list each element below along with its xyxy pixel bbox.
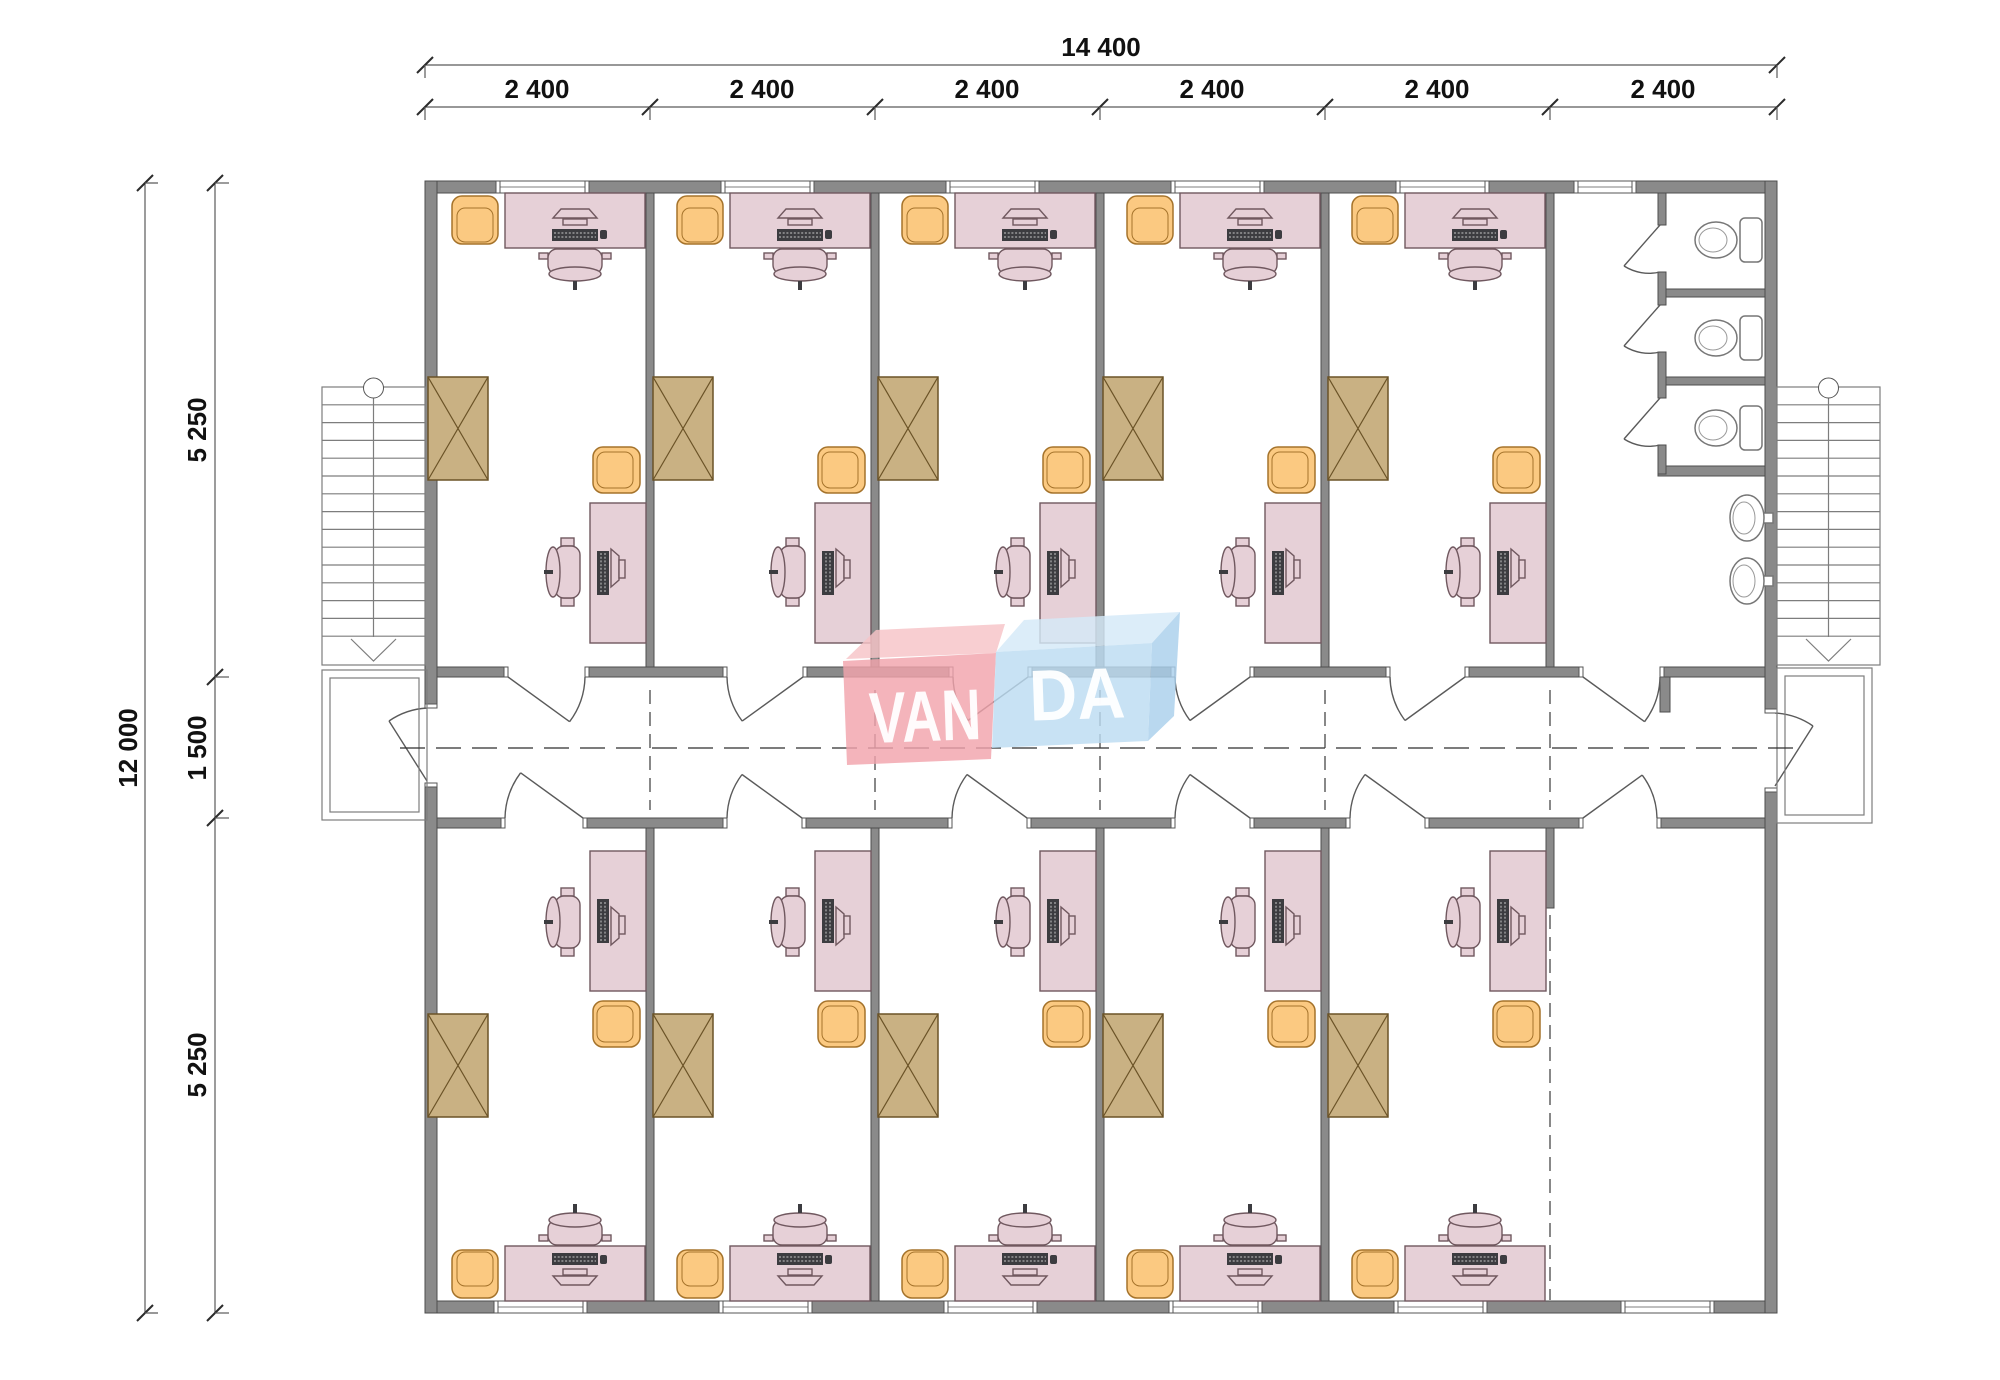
wall-segment xyxy=(1658,377,1765,385)
door-swing xyxy=(1175,677,1190,721)
staircase-left xyxy=(322,378,425,665)
door-jamb xyxy=(1250,667,1254,677)
wall-segment xyxy=(1425,818,1583,828)
door-leaf xyxy=(521,773,583,818)
office-room-furniture-top xyxy=(1103,193,1321,643)
door-leaf xyxy=(1775,726,1813,786)
window-jamb xyxy=(494,1301,498,1313)
toilet xyxy=(1695,406,1762,450)
vanda-logo: VAN DA xyxy=(843,612,1180,765)
entry-landing-left xyxy=(322,670,427,820)
wall-segment xyxy=(1765,788,1777,1313)
logo-text-van: VAN xyxy=(868,675,983,759)
wall-segment xyxy=(1658,352,1666,398)
stall-door-swing xyxy=(1624,266,1660,273)
office-room-furniture-top xyxy=(878,193,1096,643)
door-leaf xyxy=(1190,775,1250,819)
door-swing xyxy=(1775,713,1813,726)
window-jamb xyxy=(1485,181,1489,193)
window-jamb xyxy=(810,181,814,193)
door-leaf xyxy=(967,775,1027,819)
toilet-tank xyxy=(1740,406,1762,450)
door-leaf xyxy=(508,677,570,722)
floor-plan-sheet: 14 400 2 400 2 400 2 400 2 400 2 400 2 4… xyxy=(0,0,2000,1380)
window-jamb xyxy=(1171,181,1175,193)
wall-segment xyxy=(1658,466,1765,476)
door-leaf xyxy=(1583,775,1642,818)
office-room-furniture-top xyxy=(428,193,646,643)
entry-landing-right xyxy=(1777,668,1872,823)
door-jamb xyxy=(1465,667,1469,677)
office-room-furniture-bottom-row xyxy=(428,851,1546,1301)
wall-segment xyxy=(437,667,508,677)
entry-landing-right-inner xyxy=(1785,676,1864,815)
door-jamb xyxy=(1386,667,1390,677)
logo-text-da: DA xyxy=(1028,653,1127,736)
door-jamb xyxy=(802,818,806,828)
toilet xyxy=(1695,218,1762,262)
wall-segment xyxy=(1657,818,1765,828)
door-swing xyxy=(727,677,742,721)
wall-segment xyxy=(1658,193,1666,225)
door-swing xyxy=(1350,775,1365,819)
office-room-furniture-top xyxy=(1328,193,1546,643)
staircase-right xyxy=(1777,378,1880,665)
toilet-bowl xyxy=(1695,410,1737,446)
door-jamb xyxy=(1579,667,1583,677)
window-jamb xyxy=(721,181,725,193)
floor-plan-drawing: 14 400 2 400 2 400 2 400 2 400 2 400 2 4… xyxy=(0,0,2000,1380)
dim-label-bay-1: 2 400 xyxy=(504,74,569,104)
window-jamb xyxy=(719,1301,723,1313)
door-jamb xyxy=(723,818,727,828)
door-leaf xyxy=(1365,775,1425,819)
office-room-furniture-bottom xyxy=(1103,851,1321,1301)
window-jamb xyxy=(944,1301,948,1313)
wall-segment xyxy=(1250,818,1350,828)
dim-extension xyxy=(425,65,1777,78)
door-jamb xyxy=(803,667,807,677)
window-jamb xyxy=(1574,181,1578,193)
window-jamb xyxy=(496,181,500,193)
window-jamb xyxy=(583,1301,587,1313)
dim-label-corridor: 1 500 xyxy=(182,715,212,780)
door-swing xyxy=(389,708,427,721)
door-jamb xyxy=(723,667,727,677)
office-room-furniture-bottom xyxy=(653,851,871,1301)
office-room-furniture-bottom xyxy=(878,851,1096,1301)
wall-segment xyxy=(1465,667,1583,677)
dim-label-bay-3: 2 400 xyxy=(954,74,1019,104)
dim-label-total-width: 14 400 xyxy=(1061,32,1141,62)
dim-label-bay-5: 2 400 xyxy=(1404,74,1469,104)
entry-landing-left-inner xyxy=(330,678,419,812)
window-jamb xyxy=(1621,1301,1625,1313)
sink-basin xyxy=(1730,495,1764,541)
toilet-tank xyxy=(1740,218,1762,262)
stall-door-swing xyxy=(1624,439,1660,446)
window-jamb xyxy=(1258,1301,1262,1313)
door-swing xyxy=(1642,775,1657,818)
window-jamb xyxy=(1035,181,1039,193)
door-swing xyxy=(727,775,742,819)
office-room-furniture-bottom xyxy=(1328,851,1546,1301)
window-jamb xyxy=(1169,1301,1173,1313)
door-leaf xyxy=(742,677,803,721)
door-leaf xyxy=(1405,677,1465,721)
door-leaf xyxy=(389,721,427,781)
door-swing xyxy=(1175,775,1190,819)
door-jamb xyxy=(948,818,952,828)
door-swing xyxy=(1390,677,1405,721)
office-room-furniture-bottom xyxy=(428,851,646,1301)
door-leaf xyxy=(1583,677,1645,722)
door-jamb xyxy=(1657,818,1661,828)
door-jamb xyxy=(1765,788,1777,792)
window-jamb xyxy=(1396,181,1400,193)
door-jamb xyxy=(504,667,508,677)
wall-segment xyxy=(1658,445,1666,474)
toilet-bowl xyxy=(1695,222,1737,258)
door-jamb xyxy=(1660,667,1664,677)
wall-segment xyxy=(1660,677,1670,712)
dim-extension xyxy=(145,183,158,1313)
stall-door-swing xyxy=(1624,346,1660,353)
dim-label-bay-4: 2 400 xyxy=(1179,74,1244,104)
door-swing xyxy=(505,773,521,818)
wall-segment xyxy=(1660,667,1765,677)
door-swing xyxy=(952,775,967,819)
door-jamb xyxy=(1250,818,1254,828)
stall-door-leaf xyxy=(1624,305,1660,346)
wall-segment xyxy=(1658,289,1765,297)
door-jamb xyxy=(585,667,589,677)
office-room-furniture-top xyxy=(653,193,871,643)
window-jamb xyxy=(1033,1301,1037,1313)
door-jamb xyxy=(1027,818,1031,828)
sanitary-fixtures xyxy=(1695,218,1773,604)
wall-segment xyxy=(425,1301,1777,1313)
dim-label-bay-2: 2 400 xyxy=(729,74,794,104)
door-swing xyxy=(570,677,585,722)
sink-basin xyxy=(1730,558,1764,604)
door-jamb xyxy=(1171,818,1175,828)
toilet-bowl xyxy=(1695,320,1737,356)
dim-label-row-top: 5 250 xyxy=(182,397,212,462)
window-jamb xyxy=(1394,1301,1398,1313)
window-jamb xyxy=(1710,1301,1714,1313)
dim-label-bay-6: 2 400 xyxy=(1630,74,1695,104)
wall-segment xyxy=(1027,818,1175,828)
window-jamb xyxy=(946,181,950,193)
toilet-tank xyxy=(1740,316,1762,360)
window-jamb xyxy=(808,1301,812,1313)
stall-door-leaf xyxy=(1624,225,1660,266)
dim-label-row-bottom: 5 250 xyxy=(182,1032,212,1097)
walls xyxy=(425,181,1777,1313)
wall-segment xyxy=(1546,828,1554,908)
wall-segment xyxy=(583,818,727,828)
window-jamb xyxy=(1260,181,1264,193)
wall-segment xyxy=(437,818,505,828)
door-jamb xyxy=(1765,709,1777,713)
wall-segment xyxy=(1546,193,1554,667)
door-leaf xyxy=(742,775,802,819)
door-jamb xyxy=(583,818,587,828)
wall-segment xyxy=(1250,667,1390,677)
wall-segment xyxy=(585,667,727,677)
door-jamb xyxy=(501,818,505,828)
dim-label-total-height: 12 000 xyxy=(113,708,143,788)
window-jamb xyxy=(1483,1301,1487,1313)
wall-segment xyxy=(1765,181,1777,713)
wall-segment xyxy=(802,818,952,828)
door-jamb xyxy=(1346,818,1350,828)
window-jamb xyxy=(585,181,589,193)
stall-door-leaf xyxy=(1624,398,1660,439)
door-leaf xyxy=(1190,677,1250,721)
door-jamb xyxy=(1425,818,1429,828)
toilet xyxy=(1695,316,1762,360)
wall-segment xyxy=(1658,272,1666,305)
door-jamb xyxy=(1579,818,1583,828)
window-jamb xyxy=(1632,181,1636,193)
door-swing xyxy=(1645,677,1660,722)
